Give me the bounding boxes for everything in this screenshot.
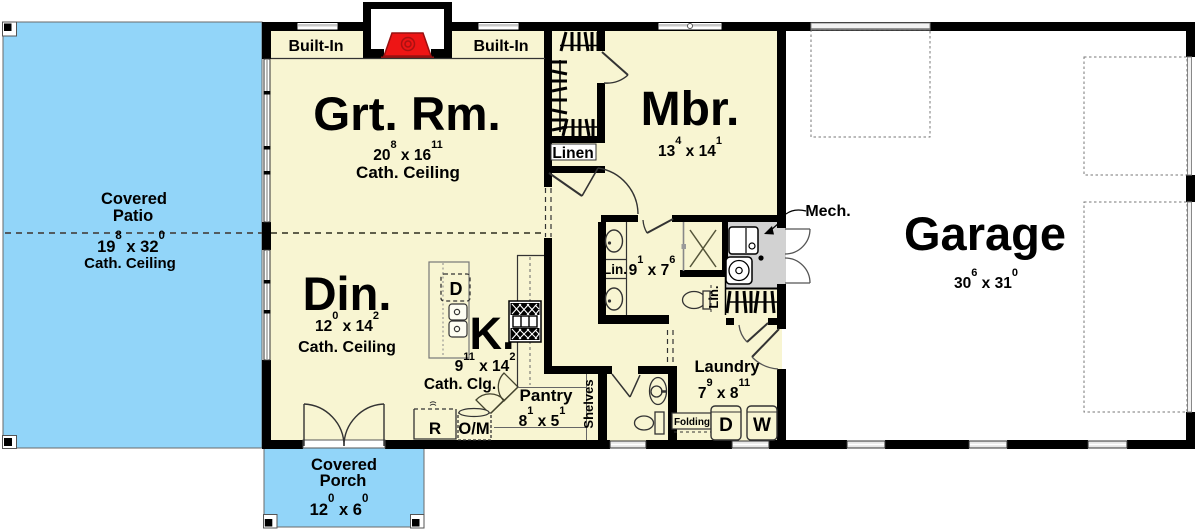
svg-text:W: W xyxy=(753,415,771,436)
svg-text:Garage: Garage xyxy=(904,207,1066,260)
svg-text:O/M: O/M xyxy=(458,420,489,438)
svg-text:Built-In: Built-In xyxy=(473,38,528,55)
svg-text:Laundry: Laundry xyxy=(694,358,760,376)
svg-text:Lin.: Lin. xyxy=(603,262,627,277)
svg-text:Pantry: Pantry xyxy=(520,386,573,405)
svg-text:Built-In: Built-In xyxy=(288,38,343,55)
svg-text:Patio: Patio xyxy=(113,207,153,225)
svg-text:Mbr.: Mbr. xyxy=(641,83,740,136)
svg-text:Cath. Ceiling: Cath. Ceiling xyxy=(298,339,396,356)
svg-text:Mech.: Mech. xyxy=(805,203,850,220)
svg-text:Cath. Clg.: Cath. Clg. xyxy=(424,376,496,393)
svg-text:R: R xyxy=(429,419,441,438)
svg-text:Cath. Ceiling: Cath. Ceiling xyxy=(356,163,460,182)
svg-text:K.: K. xyxy=(470,308,515,359)
svg-text:D: D xyxy=(450,279,463,299)
svg-text:Linen: Linen xyxy=(552,145,593,162)
svg-text:Cath. Ceiling: Cath. Ceiling xyxy=(84,255,176,272)
svg-text:Covered: Covered xyxy=(101,190,167,208)
svg-text:Lin.: Lin. xyxy=(706,285,721,308)
svg-text:Porch: Porch xyxy=(320,472,367,490)
svg-text:D: D xyxy=(719,415,733,436)
svg-text:Folding: Folding xyxy=(674,417,710,428)
svg-text:Grt. Rm.: Grt. Rm. xyxy=(313,88,500,141)
svg-text:Shelves: Shelves xyxy=(581,379,596,428)
